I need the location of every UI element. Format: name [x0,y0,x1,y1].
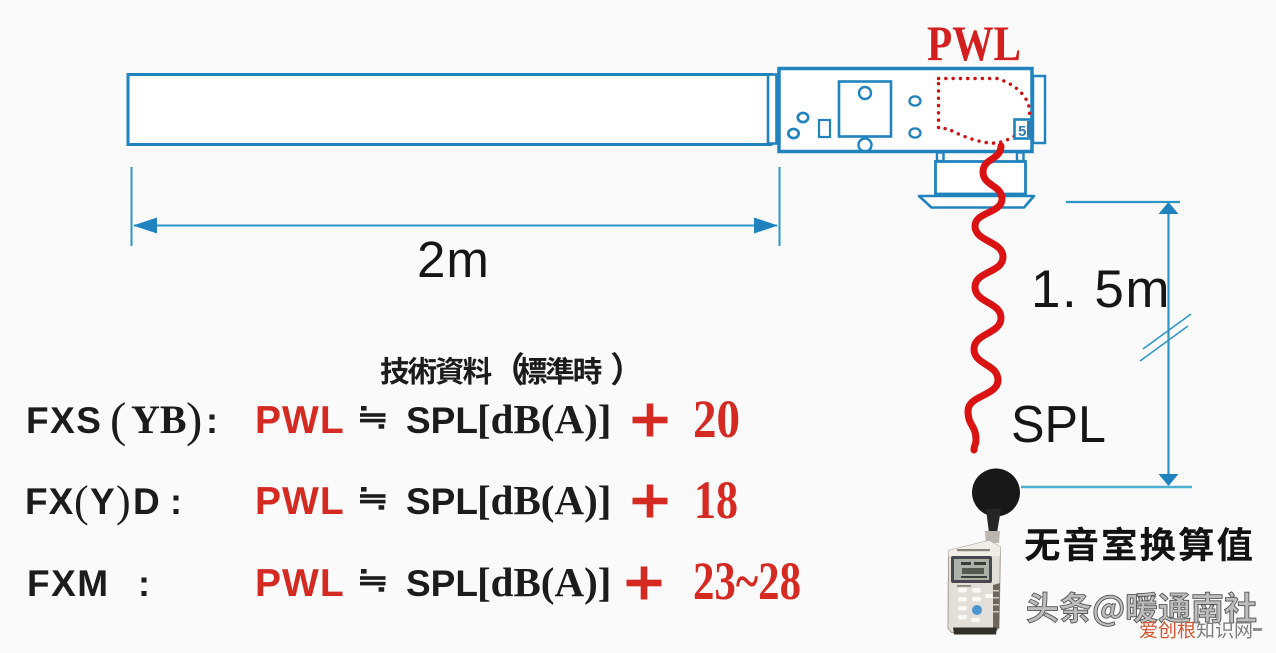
svg-text:1. 5m: 1. 5m [1031,260,1171,319]
svg-text:5: 5 [1018,123,1026,140]
svg-text:D: D [133,481,160,522]
svg-text:2m: 2m [417,231,490,288]
svg-text:Y: Y [90,481,115,522]
svg-text:): ) [186,392,202,447]
svg-text:SPL: SPL [406,563,478,604]
svg-text:PWL: PWL [255,480,345,523]
svg-text:(: ( [74,477,89,526]
svg-text::: : [206,400,218,441]
svg-text:FXS: FXS [26,400,102,441]
svg-text:[dB(A)]: [dB(A)] [477,396,611,442]
svg-text:SPL: SPL [1011,396,1106,454]
svg-text:[dB(A)]: [dB(A)] [477,559,611,605]
svg-text:SPL: SPL [406,400,478,441]
svg-text:20: 20 [693,389,740,449]
svg-text:): ) [116,477,131,526]
svg-text:FX: FX [25,481,74,522]
svg-text:23~28: 23~28 [693,551,801,611]
svg-text:(: ( [110,392,126,447]
svg-text:SPL: SPL [406,481,478,522]
svg-text:YB: YB [131,397,187,442]
svg-text:PWL: PWL [255,399,345,442]
svg-text:PWL: PWL [927,15,1021,71]
svg-text::: : [138,563,150,604]
svg-text::: : [170,481,182,522]
svg-text:FXM: FXM [27,563,110,604]
svg-text:[dB(A)]: [dB(A)] [477,477,611,523]
svg-text:PWL: PWL [255,562,345,605]
svg-text:18: 18 [694,470,738,530]
